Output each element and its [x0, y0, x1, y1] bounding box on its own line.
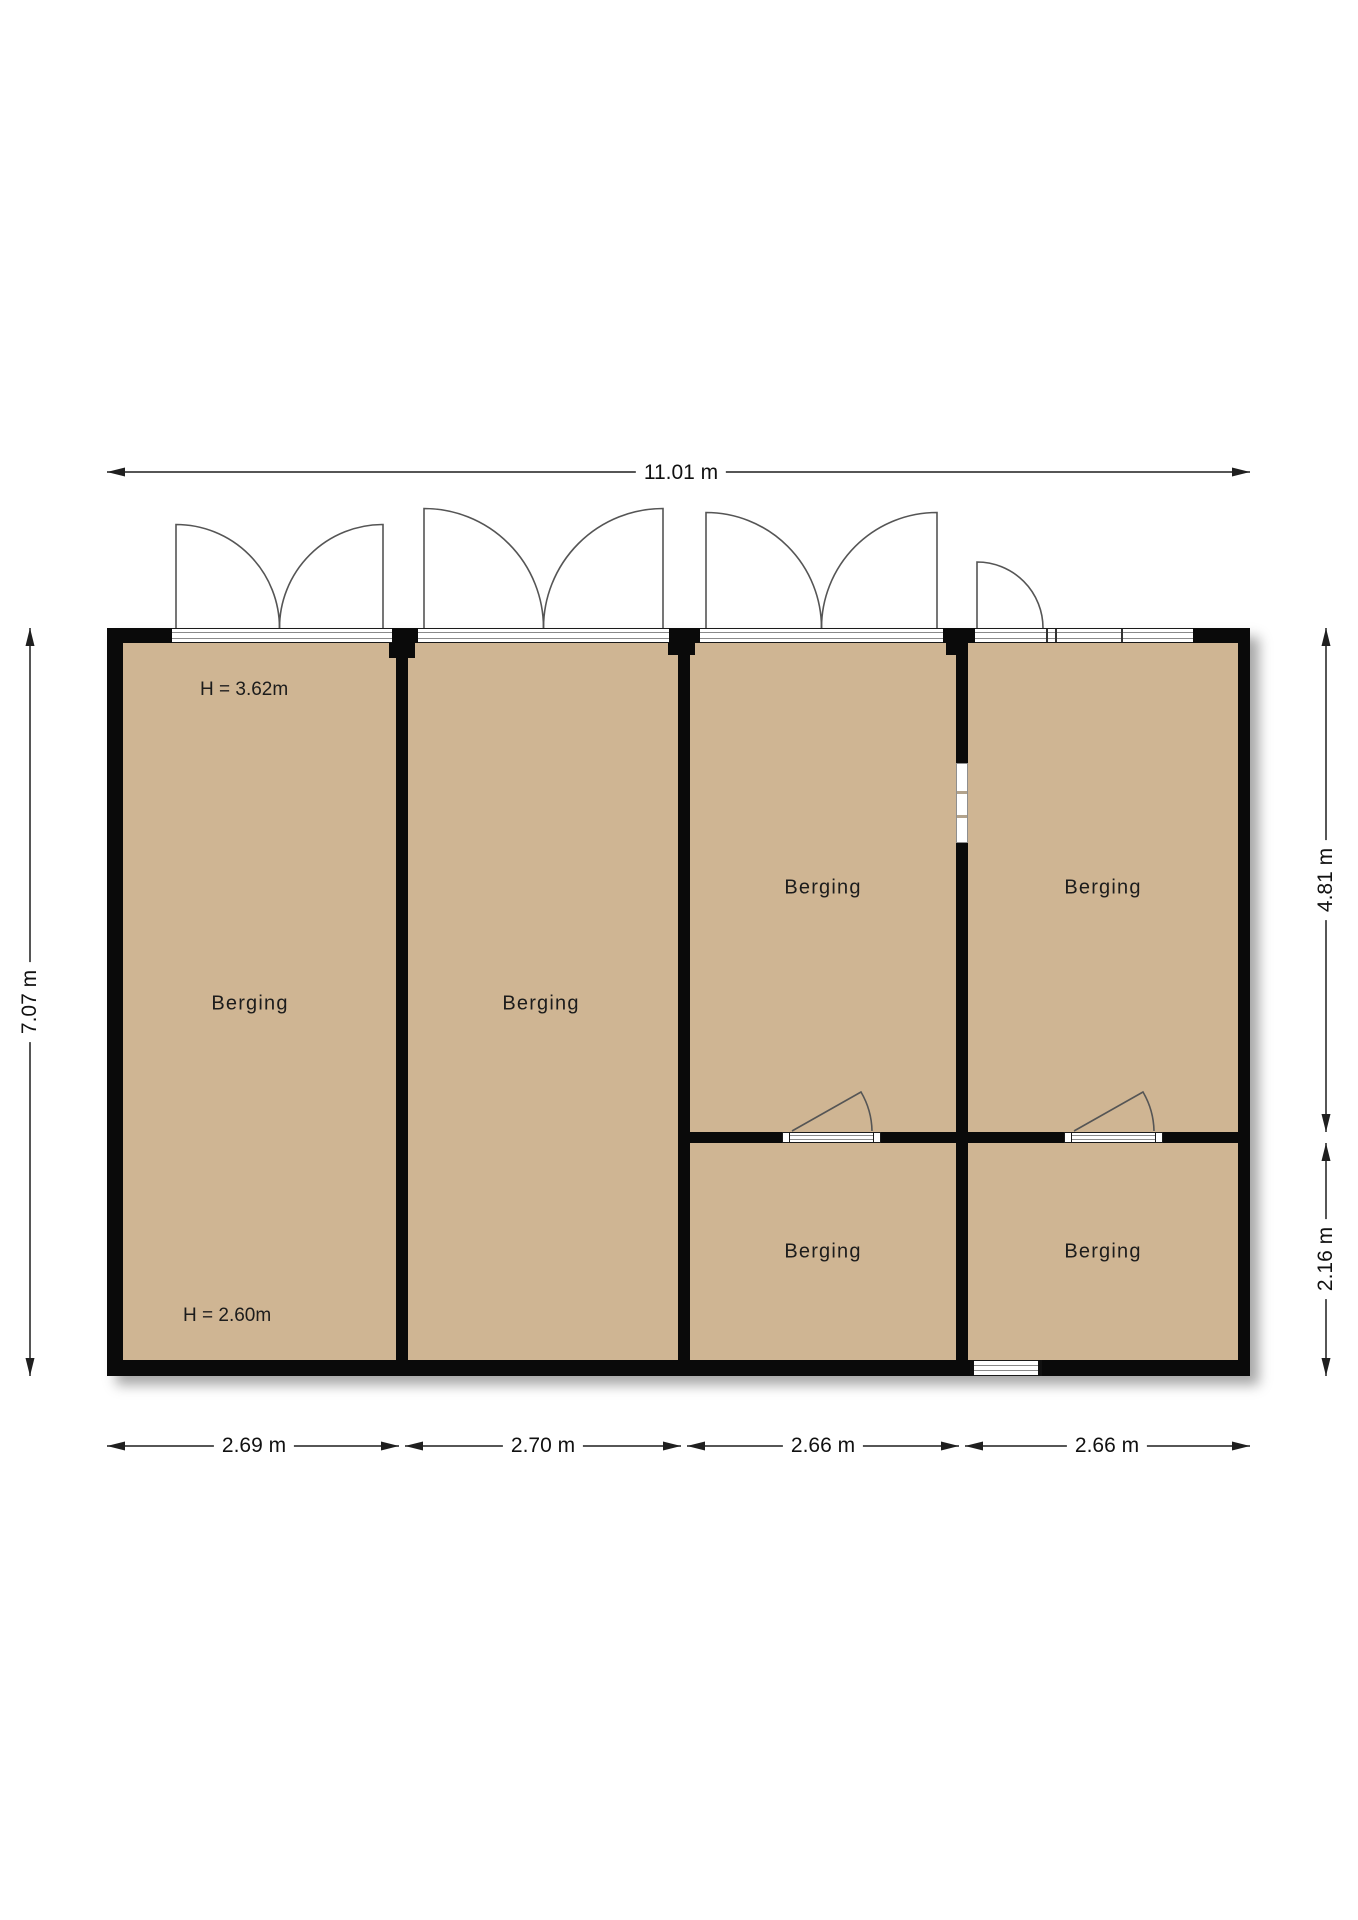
door-leaf-1-left — [176, 525, 280, 629]
door-leaf-3-right — [822, 513, 938, 629]
room-label-berging-3: Berging — [784, 877, 861, 900]
arrowhead — [1322, 1114, 1331, 1132]
dim-label-bottom-3: 2.66 m — [783, 1433, 863, 1459]
door-leaf-2-left — [424, 509, 544, 629]
arrowhead — [687, 1442, 705, 1451]
floor-plan-canvas: Berging Berging Berging Berging Berging … — [0, 0, 1358, 1920]
arrowhead — [965, 1442, 983, 1451]
arrowhead — [26, 1358, 35, 1376]
room-label-berging-5: Berging — [784, 1241, 861, 1264]
height-note-lower: H = 2.60m — [183, 1305, 271, 1327]
room-label-berging-1: Berging — [211, 993, 288, 1016]
door-leaf-2-right — [544, 509, 664, 629]
entrance-door-arcs — [176, 509, 1043, 629]
arrowhead — [381, 1442, 399, 1451]
dim-label-total-height: 7.07 m — [17, 962, 43, 1042]
arrowhead — [26, 628, 35, 646]
dim-label-right-lower: 2.16 m — [1313, 1219, 1339, 1299]
height-note-upper: H = 3.62m — [200, 679, 288, 701]
arrowhead — [1232, 468, 1250, 477]
door-leaf-1-right — [280, 525, 384, 629]
plan-linework — [0, 0, 1358, 1920]
room-label-berging-2: Berging — [502, 993, 579, 1016]
arrowhead — [663, 1442, 681, 1451]
room-label-berging-4: Berging — [1064, 877, 1141, 900]
dim-label-bottom-1: 2.69 m — [214, 1433, 294, 1459]
room-label-berging-6: Berging — [1064, 1241, 1141, 1264]
interior-door-arcs — [792, 1092, 1154, 1131]
dimension-lines — [26, 468, 1331, 1451]
door-leaf-room6 — [1074, 1092, 1154, 1131]
door-leaf-3-left — [706, 513, 822, 629]
arrowhead — [107, 1442, 125, 1451]
arrowhead — [405, 1442, 423, 1451]
arrowhead — [1322, 1143, 1331, 1161]
arrowhead — [1232, 1442, 1250, 1451]
arrowhead — [1322, 1358, 1331, 1376]
arrowhead — [107, 468, 125, 477]
door-leaf-room5 — [792, 1092, 872, 1131]
dim-label-bottom-2: 2.70 m — [503, 1433, 583, 1459]
door-leaf-4 — [977, 562, 1043, 628]
dim-label-right-upper: 4.81 m — [1313, 840, 1339, 920]
dim-label-total-width: 11.01 m — [636, 460, 726, 486]
arrowhead — [941, 1442, 959, 1451]
arrowhead — [1322, 628, 1331, 646]
dim-label-bottom-4: 2.66 m — [1067, 1433, 1147, 1459]
